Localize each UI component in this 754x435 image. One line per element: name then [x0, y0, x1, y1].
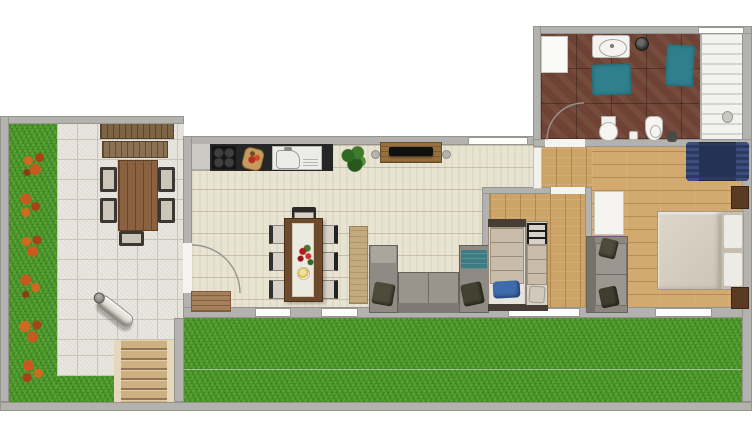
kids-bed-headboard — [488, 219, 526, 227]
outdoor-chair — [158, 167, 175, 192]
flower-cluster — [16, 316, 46, 346]
window — [698, 27, 744, 34]
table-bowl — [297, 267, 310, 280]
kids-bed-footboard — [488, 304, 526, 311]
flower-cluster — [18, 356, 48, 386]
window — [321, 308, 358, 317]
kitchen-sink — [272, 146, 322, 170]
outer-bottom-wall — [0, 402, 752, 411]
bunk-ladder — [527, 223, 547, 244]
armchair-armrest — [686, 142, 699, 181]
toilet — [599, 122, 618, 141]
hob — [212, 146, 236, 169]
door-leaf — [533, 147, 542, 189]
flower-cluster — [20, 150, 48, 180]
vanity-basin — [599, 39, 627, 57]
garden-bench-seat — [102, 141, 168, 158]
bed-pillow — [723, 252, 743, 287]
window — [655, 308, 712, 317]
kids-bed-blue-pillow — [493, 280, 521, 298]
shower-area — [700, 33, 742, 139]
shower-drain — [722, 111, 733, 123]
entry-door-gap — [183, 243, 192, 293]
bed-pillow — [723, 214, 743, 249]
sofa-pillow — [371, 281, 396, 306]
bathroom-door-gap — [545, 139, 585, 147]
armchair-armrest — [736, 142, 749, 181]
outdoor-table — [118, 160, 158, 231]
bathroom-lamp — [635, 37, 649, 51]
bathroom-cabinet — [541, 36, 568, 73]
plant — [340, 144, 367, 173]
lawn-seam — [184, 369, 742, 370]
back-lawn — [184, 318, 744, 402]
kids-bed-small-pillow — [528, 285, 545, 303]
console-table — [349, 226, 368, 304]
sofa-pillow — [460, 281, 485, 307]
bidet — [645, 116, 663, 141]
vanity-faucet — [610, 44, 614, 48]
dining-chair — [322, 252, 338, 271]
flower-cluster — [18, 231, 46, 261]
double-bed-duvet — [658, 212, 722, 289]
flower-cluster — [16, 190, 44, 220]
navy-armchair — [686, 142, 749, 181]
dining-chair — [269, 280, 285, 299]
outdoor-chair — [100, 198, 117, 223]
floor-plan-canvas — [0, 0, 754, 435]
bidet-basin — [650, 125, 661, 138]
outdoor-chair — [100, 167, 117, 192]
patio-corner-grass — [57, 376, 114, 402]
dining-chair — [269, 252, 285, 271]
kids-bed-duvet — [490, 227, 524, 284]
sofa-backrest — [398, 303, 459, 313]
table-flowers — [294, 243, 316, 267]
bedroom-sofa-back — [587, 237, 595, 312]
patio-paving-lower — [57, 340, 114, 376]
bathroom-small-item — [629, 131, 638, 140]
stairs-side-wall — [174, 318, 184, 402]
bathroom-left-wall — [533, 26, 541, 147]
garden-left-wall — [0, 116, 9, 402]
armchair-seat — [699, 146, 736, 177]
nightstand — [731, 287, 749, 309]
small-pot — [371, 150, 380, 159]
sink-faucet — [284, 147, 292, 151]
entry-mat — [191, 291, 231, 312]
dining-chair — [269, 225, 285, 244]
wardrobe — [594, 191, 624, 235]
vanity — [592, 35, 630, 58]
small-pot — [442, 150, 451, 159]
sink-drainer-lines — [303, 159, 318, 160]
nightstand — [731, 186, 749, 209]
window — [255, 308, 291, 317]
garden-stairs — [114, 340, 174, 402]
outdoor-chair — [158, 198, 175, 223]
dining-chair — [322, 280, 338, 299]
kids-bed-small-duvet — [527, 244, 547, 285]
dining-chair — [322, 225, 338, 244]
sofa-left-headrest — [371, 246, 396, 263]
window — [468, 137, 528, 145]
garden-top-wall — [0, 116, 184, 124]
kids-door-gap — [551, 187, 585, 194]
kitchen-counter-end — [192, 144, 210, 171]
outdoor-chair — [119, 231, 144, 246]
sink-basin — [276, 150, 300, 169]
bath-mat — [591, 63, 631, 95]
tv — [389, 147, 433, 156]
bedroom-sofa-pillow — [598, 285, 620, 308]
flower-cluster — [16, 271, 44, 301]
bathroom-bin — [667, 131, 677, 142]
sofa-teal-blanket — [461, 250, 487, 269]
kids-bed-small-footboard — [526, 305, 548, 311]
bath-mat — [665, 44, 695, 86]
